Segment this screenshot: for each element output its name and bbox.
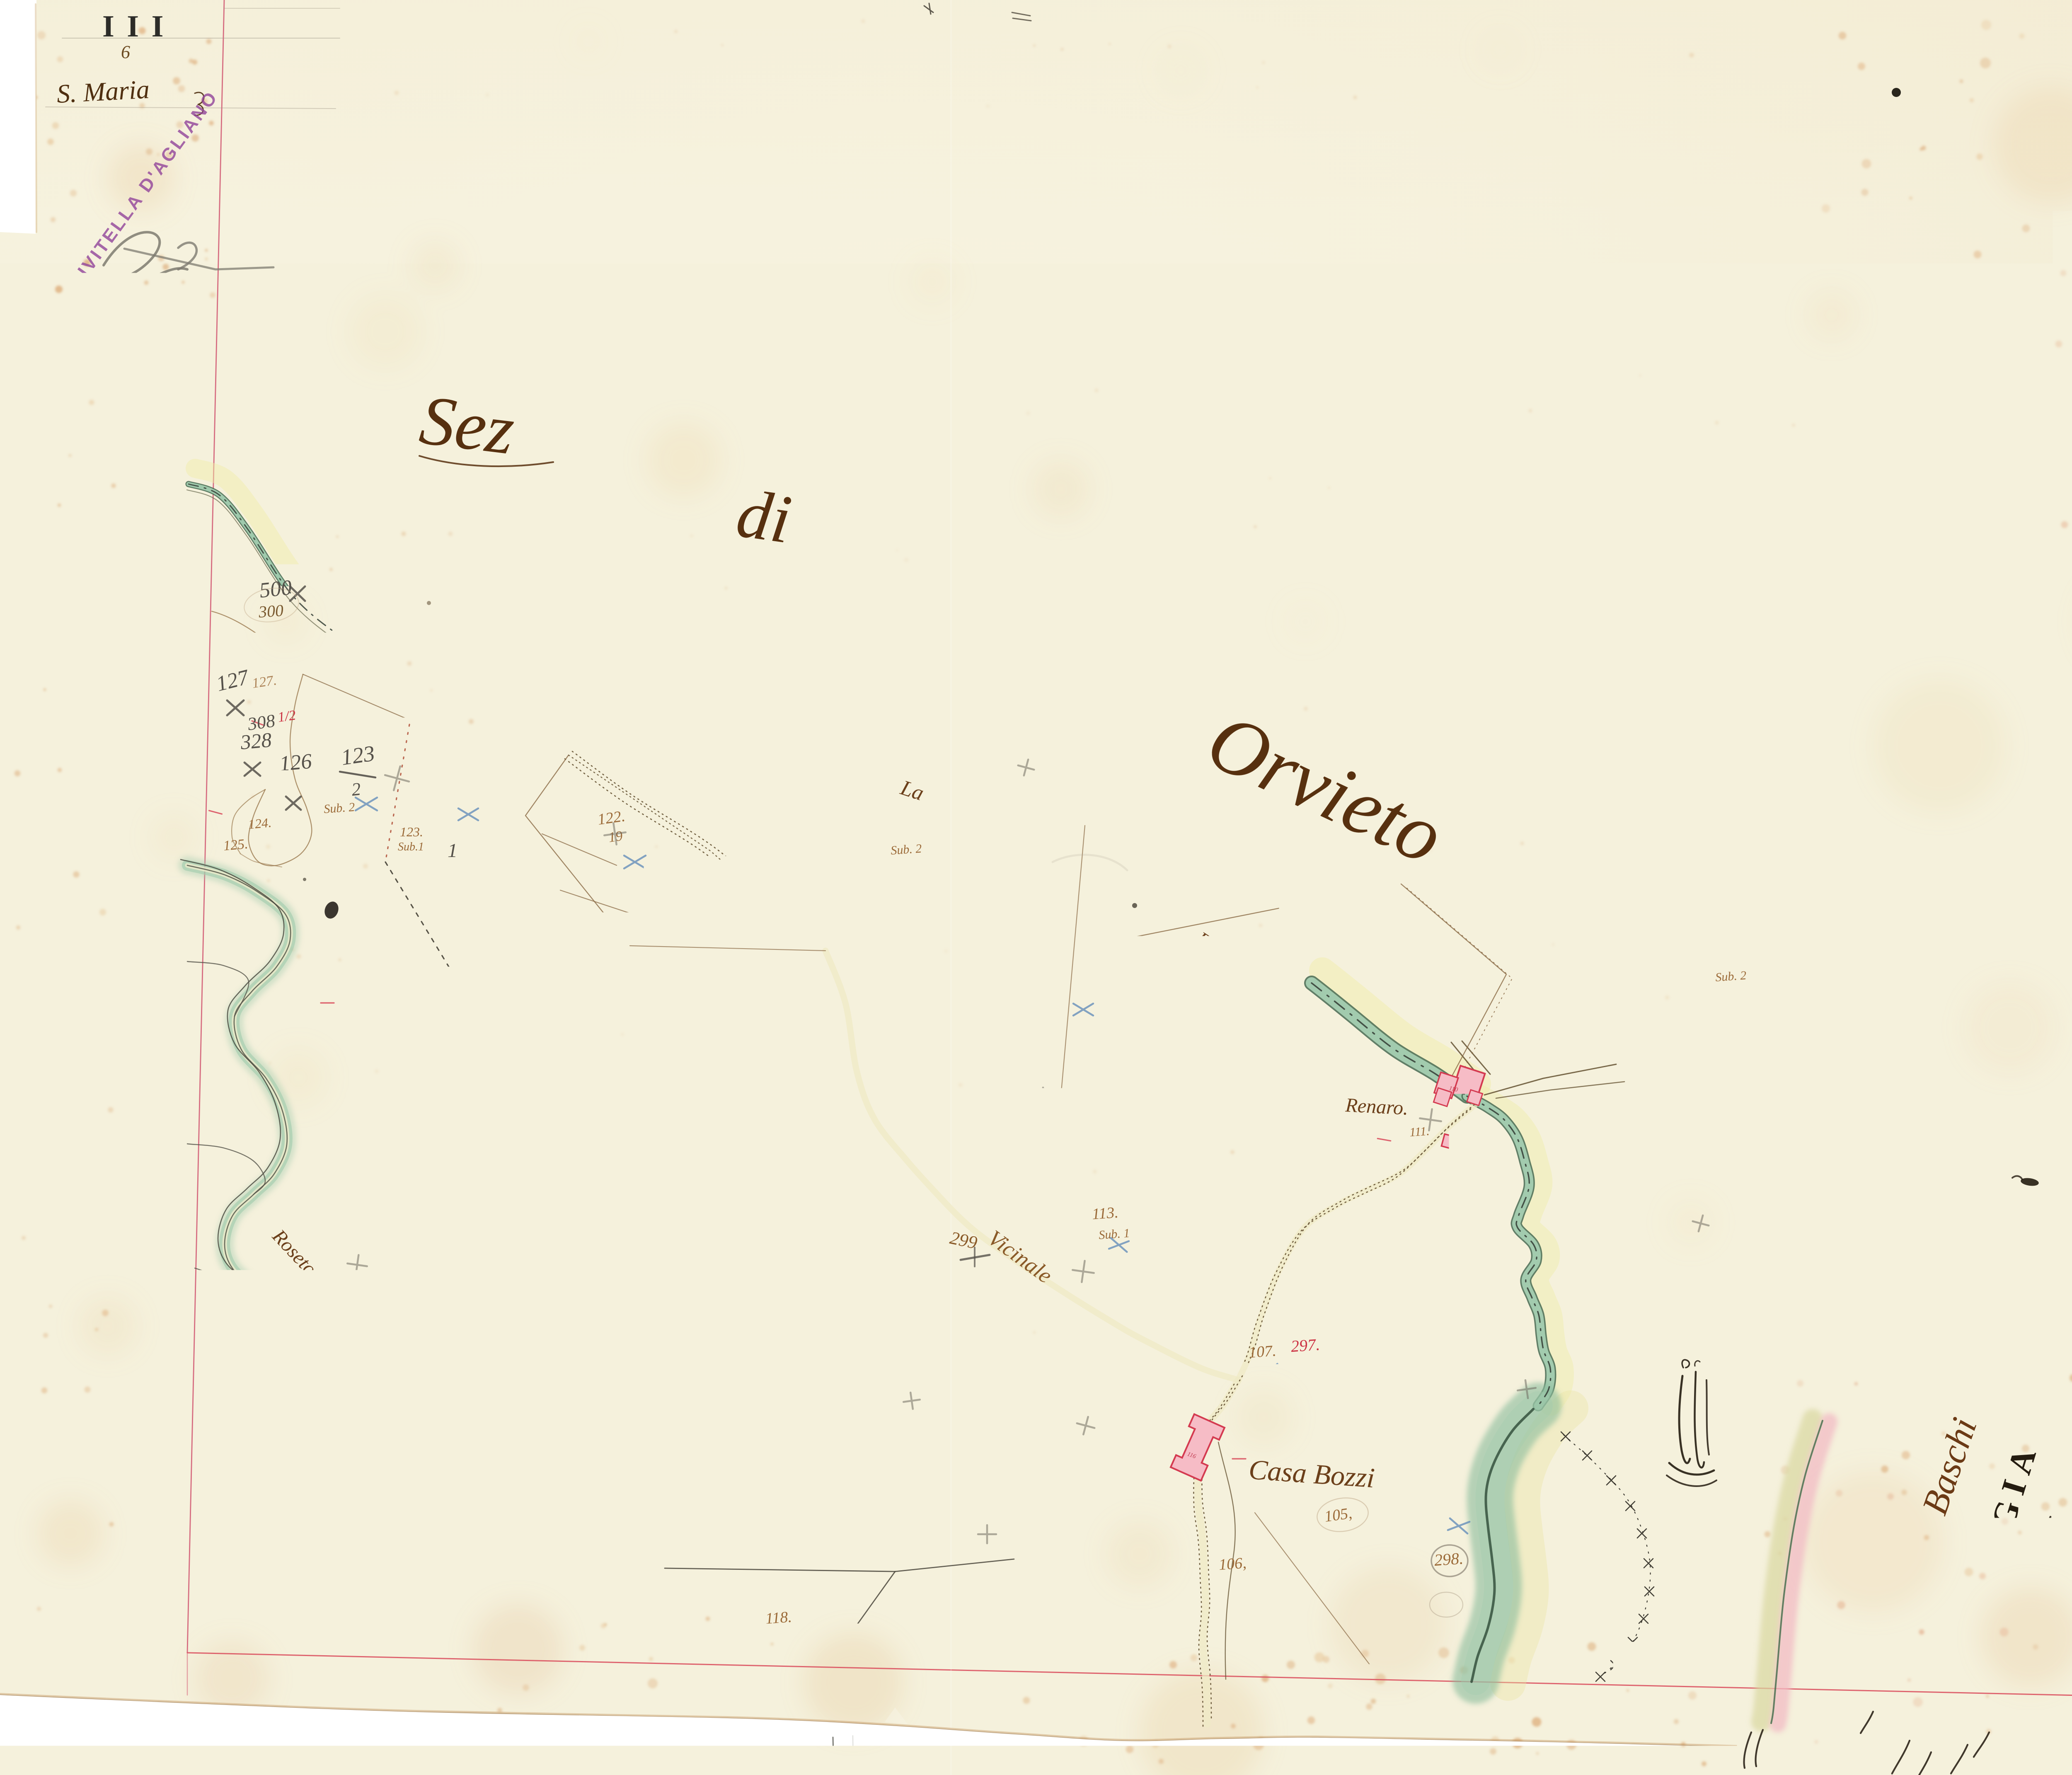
svg-text:108.: 108. (1437, 1271, 1466, 1291)
svg-text:1: 1 (448, 840, 457, 862)
svg-text:123.: 123. (400, 824, 423, 839)
svg-text:109.: 109. (1344, 1211, 1373, 1231)
svg-text:2: 2 (633, 1380, 639, 1394)
svg-text:Sub. 2: Sub. 2 (868, 1007, 902, 1024)
svg-text:115: 115 (623, 1353, 646, 1372)
svg-text:di: di (732, 475, 796, 557)
svg-text:Sez: Sez (416, 380, 518, 469)
svg-text:176.: 176. (286, 772, 313, 790)
svg-text:Sub. 2: Sub. 2 (323, 800, 355, 816)
svg-text:13.: 13. (289, 1318, 310, 1337)
svg-text:123: 123 (339, 741, 376, 770)
svg-text:298.: 298. (1433, 1549, 1464, 1569)
svg-text:123: 123 (431, 804, 472, 835)
svg-text:1/2: 1/2 (277, 707, 297, 725)
svg-text:111.: 111. (1409, 1124, 1430, 1139)
svg-text:6: 6 (121, 42, 130, 62)
svg-text:112: 112 (485, 1628, 506, 1644)
svg-text:297.: 297. (1290, 1335, 1320, 1356)
svg-text:118.: 118. (765, 1608, 792, 1627)
svg-text:344.: 344. (1458, 1143, 1485, 1160)
svg-text:124.: 124. (247, 815, 272, 832)
svg-text:94.: 94. (370, 1630, 391, 1649)
svg-text:125.: 125. (223, 836, 248, 854)
svg-text:328: 328 (239, 728, 273, 754)
svg-text:1: 1 (834, 1365, 841, 1380)
svg-text:500: 500 (258, 576, 293, 603)
svg-text:S. Maria: S. Maria (56, 74, 150, 109)
svg-text:92.: 92. (324, 1541, 347, 1561)
svg-text:107.: 107. (1248, 1342, 1277, 1361)
svg-text:Sub. 2: Sub. 2 (1715, 969, 1747, 984)
svg-text:112,: 112, (1101, 994, 1128, 1013)
svg-text:300: 300 (257, 601, 284, 621)
svg-text:95: 95 (597, 1609, 619, 1633)
svg-text:Sub. 2: Sub. 2 (890, 842, 922, 857)
svg-text:Sub.1: Sub.1 (398, 840, 424, 853)
svg-text:116.: 116. (822, 1334, 852, 1356)
svg-text:106,: 106, (1218, 1554, 1247, 1574)
svg-text:Renaro.: Renaro. (1344, 1094, 1409, 1119)
svg-text:I I I: I I I (102, 10, 166, 44)
svg-text:113.: 113. (1092, 1204, 1119, 1223)
